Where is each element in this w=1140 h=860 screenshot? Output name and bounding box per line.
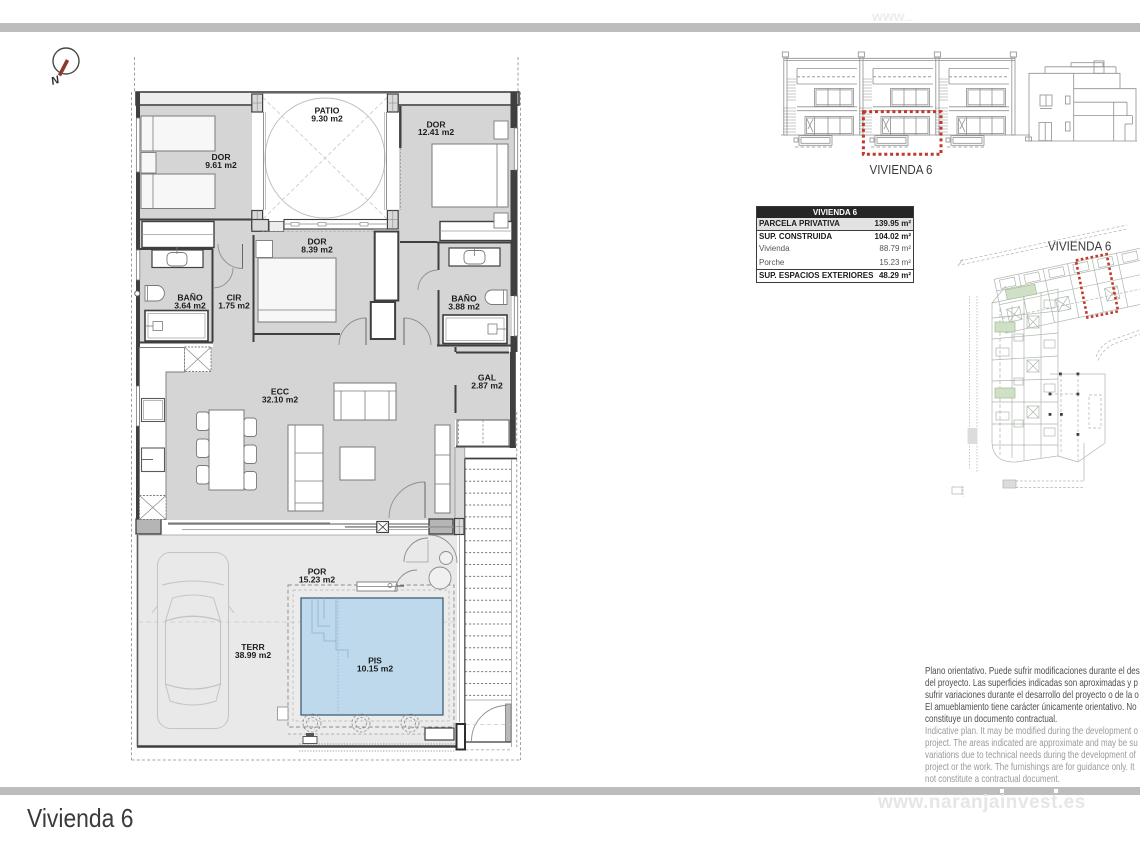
svg-text:VIVIENDA 6: VIVIENDA 6: [1048, 239, 1112, 254]
svg-text:38.99 m2: 38.99 m2: [235, 650, 272, 660]
svg-text:12.41 m2: 12.41 m2: [418, 127, 455, 137]
svg-text:8.39 m2: 8.39 m2: [301, 245, 333, 255]
svg-text:10.15 m2: 10.15 m2: [357, 664, 394, 674]
svg-text:9.61 m2: 9.61 m2: [205, 160, 237, 170]
svg-text:3.64 m2: 3.64 m2: [174, 301, 206, 311]
svg-text:15.23 m2: 15.23 m2: [299, 575, 336, 585]
svg-text:3.88 m2: 3.88 m2: [448, 302, 480, 312]
svg-text:1.75 m2: 1.75 m2: [218, 301, 250, 311]
svg-text:32.10 m2: 32.10 m2: [262, 395, 299, 405]
svg-text:N: N: [50, 74, 62, 88]
svg-text:2.87 m2: 2.87 m2: [471, 381, 503, 391]
svg-text:9.30 m2: 9.30 m2: [311, 114, 343, 124]
svg-text:VIVIENDA 6: VIVIENDA 6: [870, 163, 933, 177]
